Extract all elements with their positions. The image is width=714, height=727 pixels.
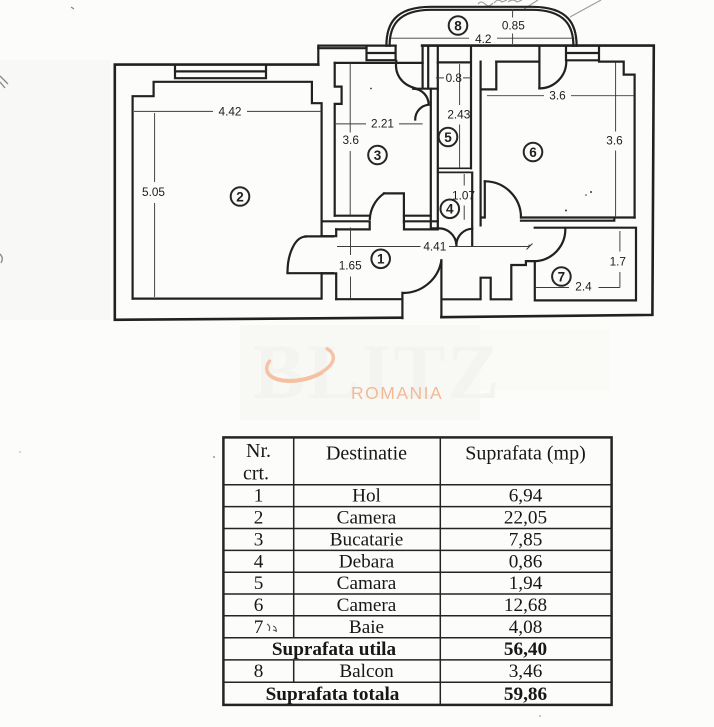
- svg-text:Camara: Camara: [337, 573, 397, 594]
- svg-text:0.8: 0.8: [446, 71, 463, 85]
- svg-text:7: 7: [558, 269, 566, 284]
- svg-text:22,05: 22,05: [504, 508, 547, 529]
- svg-text:Nr.: Nr.: [246, 440, 271, 462]
- svg-text:12,68: 12,68: [504, 595, 547, 616]
- svg-text:6,94: 6,94: [509, 486, 543, 507]
- svg-text:Suprafata totala: Suprafata totala: [266, 684, 400, 705]
- svg-text:4: 4: [446, 202, 454, 217]
- svg-text:3,46: 3,46: [509, 661, 543, 682]
- svg-text:4,08: 4,08: [509, 617, 543, 638]
- svg-text:Destinatie: Destinatie: [326, 443, 407, 465]
- svg-text:Bucatarie: Bucatarie: [330, 529, 404, 550]
- svg-text:3: 3: [374, 148, 382, 163]
- svg-text:2: 2: [236, 189, 244, 204]
- svg-text:Baie: Baie: [349, 617, 384, 638]
- svg-text:4.2: 4.2: [475, 32, 491, 46]
- svg-text:59,86: 59,86: [504, 684, 548, 705]
- svg-text:Debara: Debara: [339, 551, 395, 572]
- svg-text:5: 5: [444, 130, 452, 145]
- svg-text:2.4: 2.4: [575, 279, 592, 293]
- svg-text:4.41: 4.41: [423, 239, 446, 253]
- svg-text:8: 8: [454, 18, 462, 33]
- svg-text:2.43: 2.43: [447, 108, 470, 122]
- svg-text:crt.: crt.: [243, 463, 269, 485]
- svg-text:3.6: 3.6: [342, 133, 359, 147]
- svg-text:1: 1: [377, 252, 385, 267]
- svg-text:Suprafata (mp): Suprafata (mp): [465, 443, 586, 465]
- svg-text:0.85: 0.85: [502, 18, 525, 32]
- svg-text:3.6: 3.6: [606, 134, 623, 148]
- svg-text:1,94: 1,94: [509, 573, 543, 594]
- svg-text:4: 4: [254, 551, 264, 572]
- svg-text:56,40: 56,40: [504, 639, 547, 660]
- svg-text:3: 3: [254, 529, 264, 550]
- svg-text:Balcon: Balcon: [339, 661, 394, 682]
- svg-text:Hol: Hol: [352, 486, 381, 507]
- svg-text:6: 6: [254, 595, 264, 616]
- svg-text:1.65: 1.65: [339, 259, 362, 273]
- svg-text:7,85: 7,85: [509, 529, 543, 550]
- svg-text:5: 5: [254, 573, 264, 594]
- svg-text:5.05: 5.05: [142, 185, 165, 199]
- svg-text:Camera: Camera: [337, 508, 397, 529]
- svg-text:Camera: Camera: [337, 595, 397, 616]
- svg-text:4.42: 4.42: [219, 104, 242, 118]
- svg-text:3.6: 3.6: [549, 88, 566, 102]
- svg-text:2.21: 2.21: [371, 117, 394, 131]
- svg-text:0,86: 0,86: [509, 551, 543, 572]
- svg-text:2: 2: [254, 508, 264, 529]
- svg-text:Suprafata utila: Suprafata utila: [272, 639, 397, 660]
- svg-text:1: 1: [254, 486, 264, 507]
- svg-text:6: 6: [529, 145, 537, 160]
- svg-text:8: 8: [254, 661, 264, 682]
- svg-text:7: 7: [254, 617, 264, 638]
- svg-text:ROMANIA: ROMANIA: [351, 383, 443, 403]
- svg-text:1.7: 1.7: [610, 255, 626, 269]
